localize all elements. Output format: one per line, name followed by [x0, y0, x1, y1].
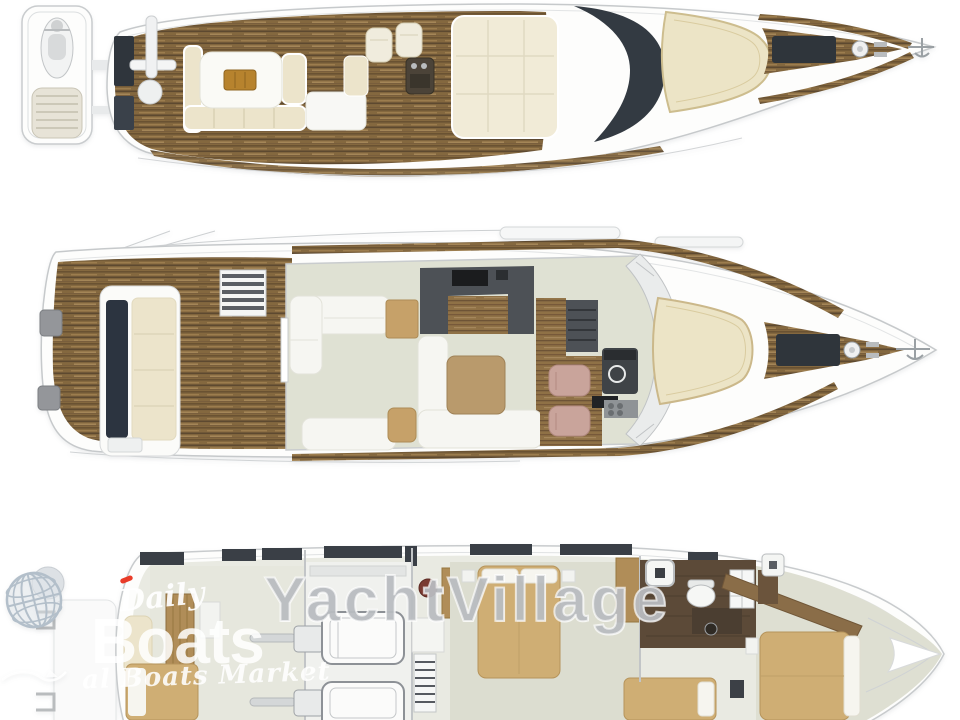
windlass-icon — [844, 342, 860, 358]
flybridge-deck-plan — [0, 0, 960, 195]
dinette-table — [447, 356, 505, 414]
anchor-locker — [776, 334, 840, 366]
globe-icon — [0, 563, 70, 629]
companionway-stairs — [566, 300, 598, 352]
master-wardrobe — [616, 558, 640, 622]
dinette-chair — [388, 408, 416, 442]
cleat — [40, 310, 62, 336]
helm-seat — [396, 23, 422, 57]
bathroom — [640, 560, 756, 648]
lower-deck-plan — [0, 542, 960, 720]
tagline-flourish — [0, 666, 70, 688]
wash-basin-icon — [705, 623, 717, 635]
helm-seat — [549, 365, 590, 396]
anchor-locker — [772, 36, 836, 63]
yacht-deck-plans-image: YachtVillage Daily Boats al Boats Market — [0, 0, 960, 720]
master-bed — [478, 566, 560, 678]
main-deck-plan — [0, 222, 960, 474]
helm-seat — [366, 28, 392, 62]
cleat — [38, 386, 60, 410]
aft-cabin — [124, 566, 305, 720]
forward-lounge — [452, 16, 558, 138]
swim-platform — [22, 6, 92, 144]
windlass-icon — [852, 41, 868, 57]
galley — [420, 266, 534, 334]
tender-jetski — [41, 18, 73, 78]
lower-stairs — [414, 654, 436, 712]
coffee-table — [200, 52, 282, 108]
lobby-table — [419, 579, 437, 597]
salon — [281, 256, 668, 450]
helm-seat — [549, 406, 590, 436]
flybridge-stairs — [220, 270, 266, 316]
sun-pad-aft — [306, 92, 366, 130]
sideboard — [386, 300, 418, 338]
toilet-icon — [687, 580, 715, 607]
platform-grate — [32, 88, 82, 138]
transom-seat — [100, 286, 180, 456]
vip-bed — [760, 632, 860, 720]
